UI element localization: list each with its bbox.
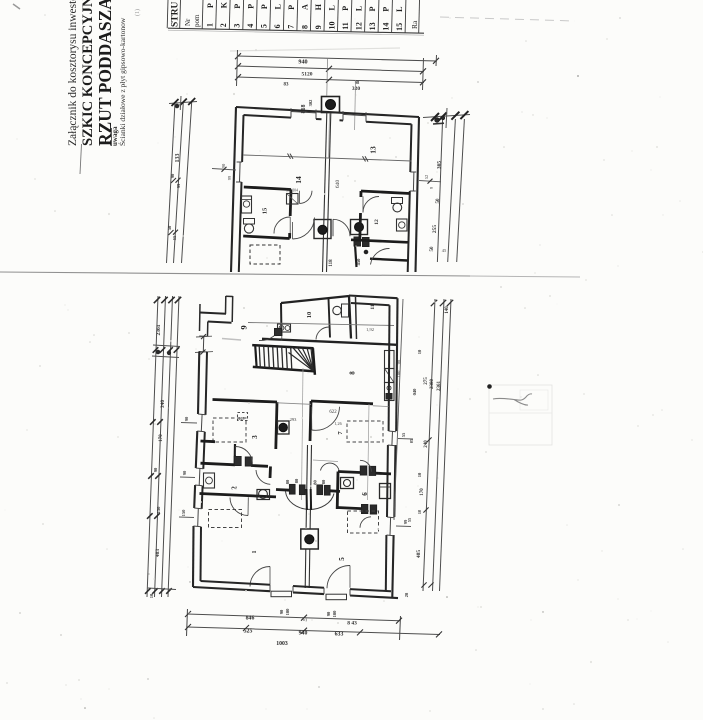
svg-text:1: 1	[252, 551, 258, 554]
svg-text:180: 180	[332, 610, 337, 618]
svg-text:13: 13	[369, 146, 378, 154]
svg-text:05: 05	[409, 439, 414, 443]
svg-text:2361: 2361	[156, 324, 162, 335]
svg-text:622: 622	[329, 410, 337, 415]
svg-text:A: A	[301, 4, 310, 10]
svg-text:50: 50	[436, 198, 441, 204]
svg-text:255: 255	[432, 225, 438, 234]
svg-text:240: 240	[424, 440, 429, 448]
svg-text:302: 302	[308, 99, 313, 107]
svg-text:Ra: Ra	[410, 20, 419, 29]
svg-text:4: 4	[246, 24, 255, 28]
svg-text:14: 14	[294, 176, 303, 184]
svg-text:90: 90	[221, 163, 226, 168]
svg-text:1: 1	[206, 23, 215, 27]
svg-text:405: 405	[416, 550, 422, 559]
svg-text:o): o)	[303, 617, 307, 622]
svg-text:040: 040	[412, 388, 417, 396]
svg-text:170: 170	[159, 434, 164, 442]
svg-text:640: 640	[335, 180, 341, 189]
svg-text:11: 11	[341, 22, 350, 30]
svg-text:50: 50	[430, 246, 435, 252]
svg-text:90: 90	[153, 467, 158, 472]
svg-text:55: 55	[172, 235, 177, 240]
svg-text:403: 403	[155, 549, 161, 558]
svg-text:L: L	[355, 6, 364, 11]
svg-text:P: P	[260, 4, 269, 9]
svg-text:P: P	[368, 6, 377, 11]
svg-text:2380: 2380	[430, 379, 435, 390]
svg-text:846: 846	[246, 616, 255, 622]
svg-text:P: P	[233, 4, 242, 9]
svg-text:90: 90	[182, 470, 187, 475]
svg-text:6: 6	[361, 492, 369, 496]
svg-text:448: 448	[238, 416, 246, 421]
svg-text:150: 150	[156, 506, 161, 514]
svg-text:50: 50	[167, 225, 172, 230]
svg-text:13: 13	[368, 22, 377, 30]
svg-text:80: 80	[321, 479, 326, 484]
svg-text:150: 150	[181, 509, 186, 517]
svg-text:L: L	[328, 5, 337, 10]
svg-text:293: 293	[290, 417, 298, 422]
svg-text:14: 14	[382, 23, 391, 31]
svg-text:3: 3	[233, 24, 242, 28]
svg-text:52: 52	[424, 175, 429, 180]
svg-text:2: 2	[231, 486, 239, 490]
svg-text:450: 450	[356, 258, 361, 266]
svg-text:118: 118	[329, 259, 334, 267]
svg-text:H: H	[314, 3, 323, 10]
svg-text:83: 83	[284, 83, 290, 88]
svg-text:320: 320	[352, 86, 361, 92]
svg-text:940: 940	[298, 59, 307, 66]
svg-text:55: 55	[407, 518, 412, 522]
svg-text:P: P	[246, 4, 255, 9]
svg-text:2: 2	[219, 23, 228, 27]
svg-text:Załącznik do kosztorysu inwest: Załącznik do kosztorysu inwestorsk	[67, 0, 79, 146]
svg-text:90: 90	[170, 173, 175, 178]
svg-text:L: L	[273, 4, 282, 9]
svg-text:90: 90	[326, 611, 331, 616]
svg-text:SZKIC KONCEPCYJNY: SZKIC KONCEPCYJNY	[80, 0, 96, 146]
svg-text:(1): (1)	[134, 9, 141, 16]
svg-text:P: P	[206, 3, 215, 8]
svg-text:10: 10	[327, 22, 336, 30]
svg-text:90: 90	[279, 609, 284, 614]
svg-text:55: 55	[401, 432, 406, 437]
svg-text:10: 10	[417, 472, 422, 477]
svg-text:8: 8	[300, 25, 309, 29]
svg-text:180: 180	[285, 608, 290, 616]
svg-text:15: 15	[395, 23, 404, 31]
svg-text:K: K	[219, 1, 228, 8]
svg-text:12: 12	[374, 219, 380, 225]
svg-text:3: 3	[251, 435, 259, 439]
svg-text:10: 10	[417, 510, 422, 514]
svg-text:275: 275	[424, 377, 429, 385]
svg-text:99: 99	[176, 183, 181, 188]
svg-text:5120: 5120	[302, 72, 313, 78]
svg-text:Nr: Nr	[184, 18, 192, 26]
svg-text:133: 133	[175, 154, 181, 163]
svg-text:8: 8	[349, 371, 357, 375]
svg-text:10: 10	[149, 593, 154, 598]
svg-text:L: L	[395, 7, 404, 12]
svg-text:90: 90	[184, 416, 189, 421]
svg-text:633: 633	[335, 632, 344, 638]
svg-text:P: P	[287, 5, 296, 10]
svg-text:525: 525	[244, 629, 253, 635]
svg-text:140: 140	[445, 306, 450, 314]
svg-text:1003: 1003	[276, 641, 288, 647]
svg-text:99: 99	[227, 175, 232, 180]
svg-text:RZUT PODDASZA: RZUT PODDASZA	[95, 0, 115, 146]
svg-text:80: 80	[294, 478, 299, 483]
svg-text:80: 80	[313, 480, 318, 485]
svg-text:9: 9	[239, 325, 249, 329]
svg-text:170: 170	[420, 488, 425, 496]
svg-text:15: 15	[262, 207, 269, 214]
svg-text:7: 7	[287, 25, 296, 29]
svg-text:80: 80	[285, 479, 290, 484]
svg-text:P: P	[341, 6, 350, 11]
svg-text:302/104: 302/104	[286, 189, 298, 193]
svg-text:5: 5	[338, 557, 346, 561]
svg-text:Ścianki działowe z płyt gipsow: Ścianki działowe z płyt gipsowo-kartonow	[117, 17, 127, 146]
svg-text:340: 340	[160, 400, 166, 409]
svg-text:8 43: 8 43	[347, 621, 357, 627]
svg-text:P: P	[382, 7, 391, 12]
svg-text:45: 45	[442, 248, 447, 253]
svg-text:pom: pom	[193, 14, 201, 27]
svg-text:940: 940	[299, 631, 308, 637]
svg-text:28: 28	[404, 592, 409, 597]
svg-text:10: 10	[306, 312, 313, 319]
svg-text:9: 9	[314, 25, 323, 29]
svg-text:6: 6	[273, 24, 282, 28]
svg-text:2361: 2361	[437, 381, 442, 392]
svg-text:12: 12	[354, 22, 363, 30]
svg-text:STRU: STRU	[171, 2, 181, 27]
svg-text:5: 5	[260, 24, 269, 28]
svg-text:365: 365	[437, 161, 443, 170]
